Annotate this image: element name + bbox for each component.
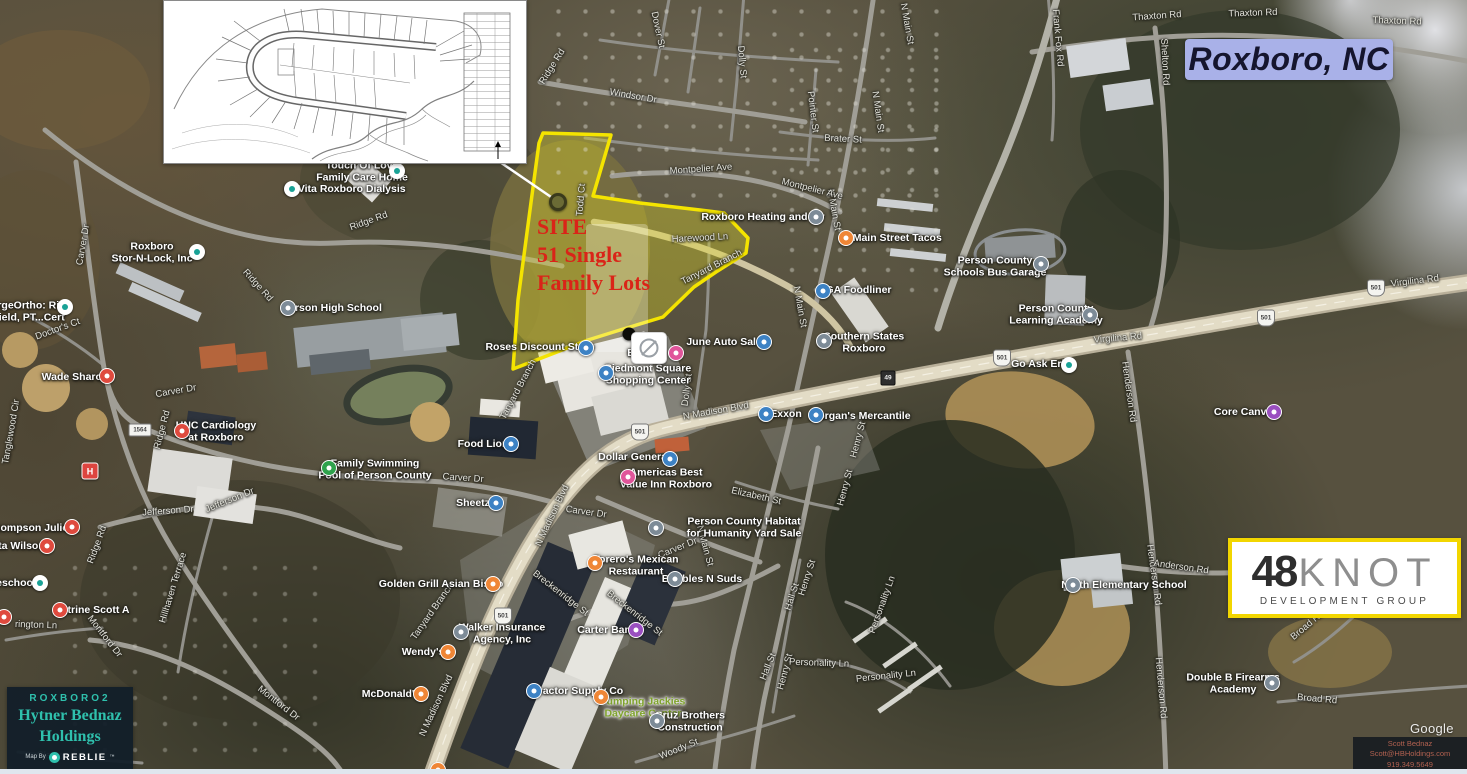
plat-drawing xyxy=(164,1,526,163)
map-by-label: Map By xyxy=(25,754,45,760)
project-name: ROXBORO2 xyxy=(29,693,110,704)
city-title-banner: Roxboro, NC xyxy=(1185,39,1393,80)
site-callout-line2: 51 Single xyxy=(537,241,650,269)
google-watermark: Google xyxy=(1410,721,1454,736)
company-name-line2: Holdings xyxy=(39,729,100,746)
city-title-text: Roxboro, NC xyxy=(1188,41,1389,78)
logo-subtitle: DEVELOPMENT GROUP xyxy=(1260,596,1429,607)
company-name-line1: Hytner Bednaz xyxy=(18,708,121,725)
contact-name: Scott Bednaz xyxy=(1388,739,1433,749)
logo-word: KNOT xyxy=(1298,553,1437,593)
map-canvas: Thaxton RdThaxton RdThaxton RdFrank Fox … xyxy=(0,0,1467,774)
branding-box: ROXBORO2 Hytner Bednaz Holdings Map By R… xyxy=(7,687,133,769)
trademark-symbol: ™ xyxy=(110,754,115,760)
contact-email: Scott@HBHoldings.com xyxy=(1370,749,1451,759)
site-callout: SITE 51 Single Family Lots xyxy=(537,213,650,297)
bottom-strip xyxy=(0,769,1467,774)
contact-card: Scott Bednaz Scott@HBHoldings.com 919.34… xyxy=(1353,737,1467,772)
logo-number: 48 xyxy=(1251,550,1296,594)
site-callout-line1: SITE xyxy=(537,213,650,241)
plat-inset xyxy=(163,0,527,164)
site-callout-line3: Family Lots xyxy=(537,269,650,297)
reblie-brand: REBLIE xyxy=(63,752,107,763)
reblie-logo-icon xyxy=(49,752,60,763)
developer-logo: 48 KNOT DEVELOPMENT GROUP xyxy=(1228,538,1461,618)
